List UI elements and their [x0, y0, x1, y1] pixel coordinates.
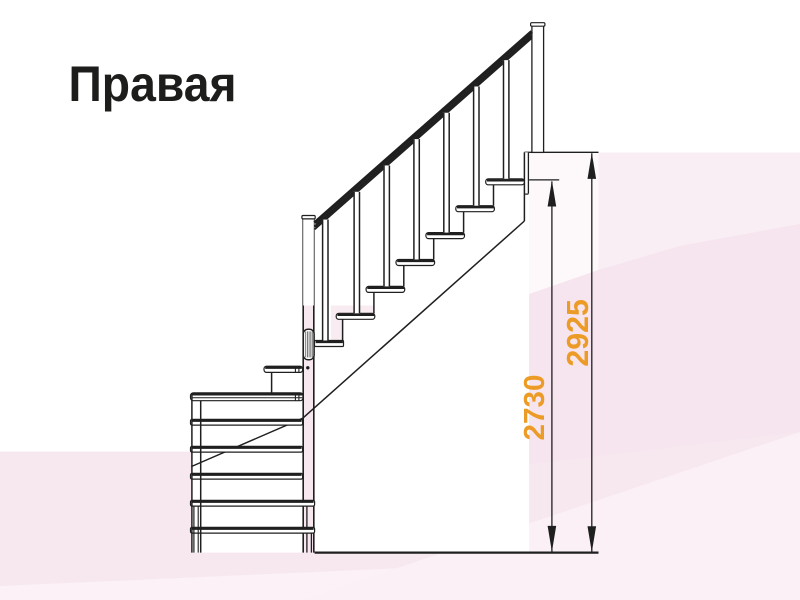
svg-text:2925: 2925 — [560, 299, 595, 367]
svg-text:2730: 2730 — [519, 375, 551, 441]
svg-text:Правая: Правая — [69, 55, 237, 112]
